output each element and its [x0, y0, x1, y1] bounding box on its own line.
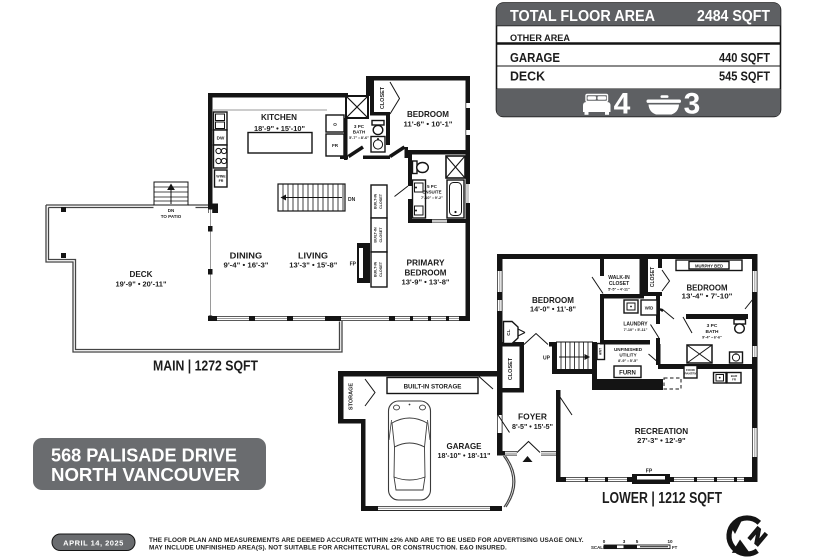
- svg-text:FR: FR: [332, 143, 339, 148]
- svg-text:CLOSET: CLOSET: [609, 281, 629, 287]
- svg-text:0: 0: [603, 539, 606, 544]
- svg-text:14'-0" • 11'-8": 14'-0" • 11'-8": [530, 307, 576, 314]
- svg-text:THE FLOOR PLAN AND MEASUREMENT: THE FLOOR PLAN AND MEASUREMENTS ARE DEEM…: [149, 537, 584, 544]
- svg-text:3: 3: [623, 539, 626, 544]
- svg-text:27'-3" • 12'-9": 27'-3" • 12'-9": [637, 438, 686, 445]
- svg-text:19'-9" • 20'-11": 19'-9" • 20'-11": [116, 282, 167, 289]
- svg-text:440 SQFT: 440 SQFT: [719, 50, 770, 65]
- svg-text:9'-4" • 6'-6": 9'-4" • 6'-6": [702, 336, 722, 340]
- svg-text:BEDROOM: BEDROOM: [532, 295, 574, 305]
- svg-text:BUILT-IN: BUILT-IN: [374, 262, 378, 278]
- svg-text:DECK: DECK: [130, 270, 153, 279]
- svg-text:W/D: W/D: [645, 306, 654, 311]
- svg-text:DW: DW: [217, 136, 225, 141]
- svg-text:CL: CL: [506, 329, 512, 335]
- svg-text:5: 5: [636, 539, 639, 544]
- svg-text:CLOSET: CLOSET: [379, 227, 383, 243]
- svg-text:BATH: BATH: [353, 130, 366, 135]
- svg-text:NORTH VANCOUVER: NORTH VANCOUVER: [51, 464, 240, 485]
- svg-text:BEDROOM: BEDROOM: [687, 283, 728, 293]
- svg-text:DECK: DECK: [510, 69, 546, 84]
- svg-text:568 PALISADE DRIVE: 568 PALISADE DRIVE: [51, 445, 237, 466]
- svg-text:FP: FP: [350, 262, 357, 268]
- svg-text:DINING: DINING: [230, 252, 263, 261]
- svg-text:LIVING: LIVING: [298, 252, 328, 261]
- svg-text:13'-9" • 13'-8": 13'-9" • 13'-8": [402, 280, 450, 287]
- svg-text:STORAGE: STORAGE: [349, 383, 355, 410]
- svg-text:8'-5" • 15'-5": 8'-5" • 15'-5": [512, 424, 553, 431]
- svg-text:CLOSET: CLOSET: [508, 357, 514, 380]
- svg-text:10: 10: [667, 539, 673, 544]
- svg-text:MAIN | 1272 SQFT: MAIN | 1272 SQFT: [153, 358, 258, 375]
- svg-text:KITCHEN: KITCHEN: [261, 112, 297, 122]
- svg-text:13'-4" • 7'-10": 13'-4" • 7'-10": [682, 294, 733, 301]
- svg-text:FOYER: FOYER: [518, 412, 547, 422]
- svg-text:3 PC: 3 PC: [707, 323, 718, 329]
- svg-text:BUILT-IN: BUILT-IN: [374, 227, 378, 243]
- svg-text:LOWER | 1212 SQFT: LOWER | 1212 SQFT: [602, 490, 722, 507]
- svg-text:TO PATIO: TO PATIO: [161, 214, 182, 219]
- svg-text:RECREATION: RECREATION: [635, 426, 689, 436]
- svg-text:HWT: HWT: [599, 348, 603, 355]
- svg-text:WINE: WINE: [216, 175, 226, 179]
- svg-text:FT: FT: [672, 545, 678, 550]
- svg-text:18'-10" • 18'-11": 18'-10" • 18'-11": [438, 453, 491, 460]
- svg-text:8'-9" • 5'-5": 8'-9" • 5'-5": [618, 359, 638, 363]
- svg-text:MURPHY BED: MURPHY BED: [695, 263, 723, 268]
- svg-text:MAY INCLUDE UNFINISHED AREA(S): MAY INCLUDE UNFINISHED AREA(S). NOT SUIT…: [149, 545, 507, 552]
- svg-text:CLOSET: CLOSET: [380, 86, 386, 109]
- svg-text:5'-5" • 4'-11": 5'-5" • 4'-11": [608, 288, 630, 292]
- svg-text:BEDROOM: BEDROOM: [407, 109, 449, 119]
- svg-text:FP: FP: [646, 469, 653, 475]
- svg-text:CLOSET: CLOSET: [650, 267, 656, 287]
- svg-text:2484 SQFT: 2484 SQFT: [697, 8, 770, 25]
- svg-text:DN: DN: [168, 208, 175, 213]
- svg-text:UP: UP: [543, 356, 551, 362]
- svg-text:4: 4: [614, 88, 631, 121]
- svg-text:BATH: BATH: [706, 329, 720, 335]
- svg-text:CLOSET: CLOSET: [379, 261, 383, 277]
- svg-text:PANTRY: PANTRY: [685, 372, 697, 376]
- svg-text:UNFINISHED: UNFINISHED: [614, 347, 643, 352]
- svg-text:3 PC: 3 PC: [354, 124, 365, 129]
- svg-text:18'-9" • 15'-10": 18'-9" • 15'-10": [254, 126, 305, 133]
- svg-text:GARAGE: GARAGE: [447, 441, 482, 451]
- svg-text:13'-3" • 15'-8": 13'-3" • 15'-8": [289, 263, 337, 270]
- svg-text:3: 3: [684, 88, 701, 121]
- svg-text:DN: DN: [348, 197, 356, 203]
- svg-text:9'-4" • 16'-3": 9'-4" • 16'-3": [224, 263, 269, 270]
- svg-text:FR: FR: [219, 179, 224, 183]
- svg-text:7'-10" • 5'-11": 7'-10" • 5'-11": [624, 328, 648, 332]
- svg-text:ENSUITE: ENSUITE: [422, 190, 441, 195]
- svg-text:11'-6" • 10'-1": 11'-6" • 10'-1": [404, 122, 453, 129]
- svg-text:BUILT-IN STORAGE: BUILT-IN STORAGE: [404, 384, 462, 391]
- svg-text:LAUNDRY: LAUNDRY: [623, 322, 648, 328]
- svg-text:BEDROOM: BEDROOM: [405, 268, 447, 278]
- svg-text:545 SQFT: 545 SQFT: [719, 69, 770, 84]
- svg-text:7'-10" • 9'-2": 7'-10" • 9'-2": [421, 196, 443, 200]
- svg-text:GARAGE: GARAGE: [510, 50, 560, 65]
- svg-text:TOTAL FLOOR AREA: TOTAL FLOOR AREA: [510, 8, 655, 25]
- svg-text:FURN: FURN: [619, 371, 636, 377]
- svg-text:OTHER AREA: OTHER AREA: [510, 33, 570, 44]
- svg-text:5'-7" • 8'-6": 5'-7" • 8'-6": [349, 136, 369, 140]
- svg-text:O: O: [333, 122, 337, 127]
- svg-text:APRIL 14, 2025: APRIL 14, 2025: [63, 539, 124, 548]
- svg-text:CLOSET: CLOSET: [379, 193, 383, 209]
- svg-text:PRIMARY: PRIMARY: [407, 258, 445, 268]
- svg-text:5 PC: 5 PC: [427, 184, 438, 189]
- svg-text:UTILITY: UTILITY: [619, 353, 636, 358]
- svg-text:BUILT-IN: BUILT-IN: [374, 194, 378, 210]
